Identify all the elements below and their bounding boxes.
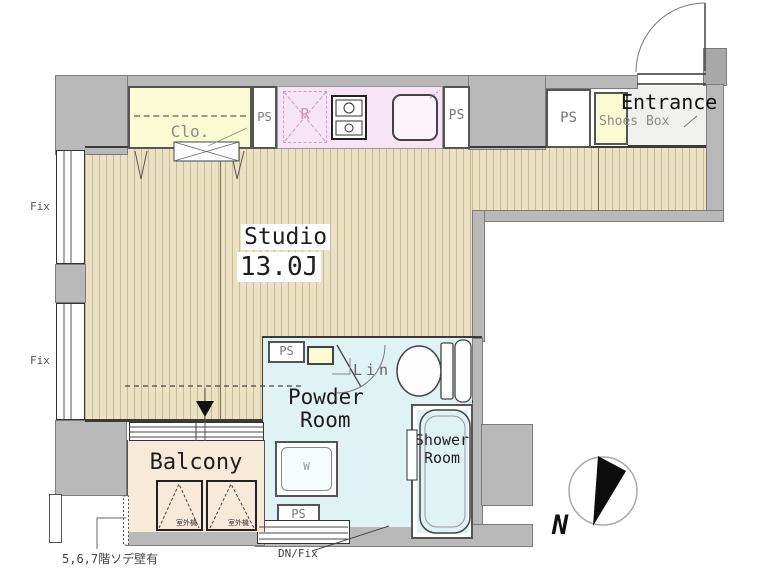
pipe-space-kitchen-left-label: PS: [254, 96, 275, 140]
sink-icon: [392, 94, 438, 141]
powder-bottom-window: [257, 520, 350, 544]
wall-mid-vertical: [472, 210, 485, 342]
pipe-space-kitchen-right-label: PS: [443, 108, 470, 123]
wall-bottomleft-block: [55, 420, 127, 496]
pipe-space-powder-bottom-label: PS: [277, 507, 320, 521]
wall-right-horizontal: [472, 210, 724, 222]
studio-area: 13.0J: [237, 252, 321, 282]
floor-plan: Clo. PS R PS PS Entrance Shoes Box Fix F…: [0, 0, 769, 575]
shower-room-inner: [417, 410, 468, 533]
closet-label: Clo.: [152, 122, 228, 141]
floor-seam-left: [220, 148, 221, 420]
powder-room-label-1: Powder: [288, 385, 364, 409]
note-leader-line: [97, 518, 126, 549]
fix-window-upper: [56, 150, 85, 264]
fix-upper-label: Fix: [30, 200, 50, 213]
fix-lower-label: Fix: [30, 354, 50, 367]
entrance-door-icon: [636, 3, 706, 84]
wall-left-pier: [55, 264, 86, 303]
wing-wall-note: 5,6,7階ソデ壁有: [62, 550, 158, 567]
floor-seam-right: [598, 148, 599, 211]
wall-door-jamb: [703, 48, 727, 86]
wall-topleft-block: [55, 75, 128, 155]
linen-label: Lin: [353, 361, 392, 379]
shower-room-label-1: Shower: [413, 431, 471, 449]
vanity-sink: [307, 346, 334, 365]
north-compass-icon: [569, 456, 637, 526]
balcony-label: Balcony: [127, 450, 265, 475]
shower-room-label-2: Room: [413, 449, 471, 467]
wall-shower-right-block: [481, 424, 533, 506]
outdoor-unit-label-2: 室外機: [228, 518, 249, 528]
studio-floor-topright: [472, 148, 706, 212]
pipe-space-powder-top-label: PS: [268, 344, 305, 358]
studio-name: Studio: [241, 224, 330, 250]
balcony-window: [129, 422, 264, 441]
pipe-space-entrance-label: PS: [546, 110, 591, 126]
entrance-step-line: [628, 145, 706, 147]
fix-window-lower: [56, 303, 85, 420]
refrigerator-label: R: [283, 105, 327, 123]
dn-fix-label: DN/Fix: [278, 547, 318, 560]
shoes-box-label: Shoes Box: [599, 114, 669, 129]
wall-midtop-block: [468, 75, 546, 150]
wall-balcony-bottom: [126, 531, 265, 546]
closet-hanger-pipe: [134, 115, 246, 117]
wall-bottomleft-pillar: [49, 494, 62, 543]
outdoor-unit-label-1: 室外機: [176, 518, 197, 528]
north-label: N: [552, 510, 568, 541]
washer-label: W: [281, 460, 332, 473]
studio-floor-lower: [85, 338, 263, 422]
entrance-label: Entrance: [621, 90, 717, 114]
stove-icon: [331, 95, 367, 140]
powder-room-label-2: Room: [300, 408, 351, 432]
